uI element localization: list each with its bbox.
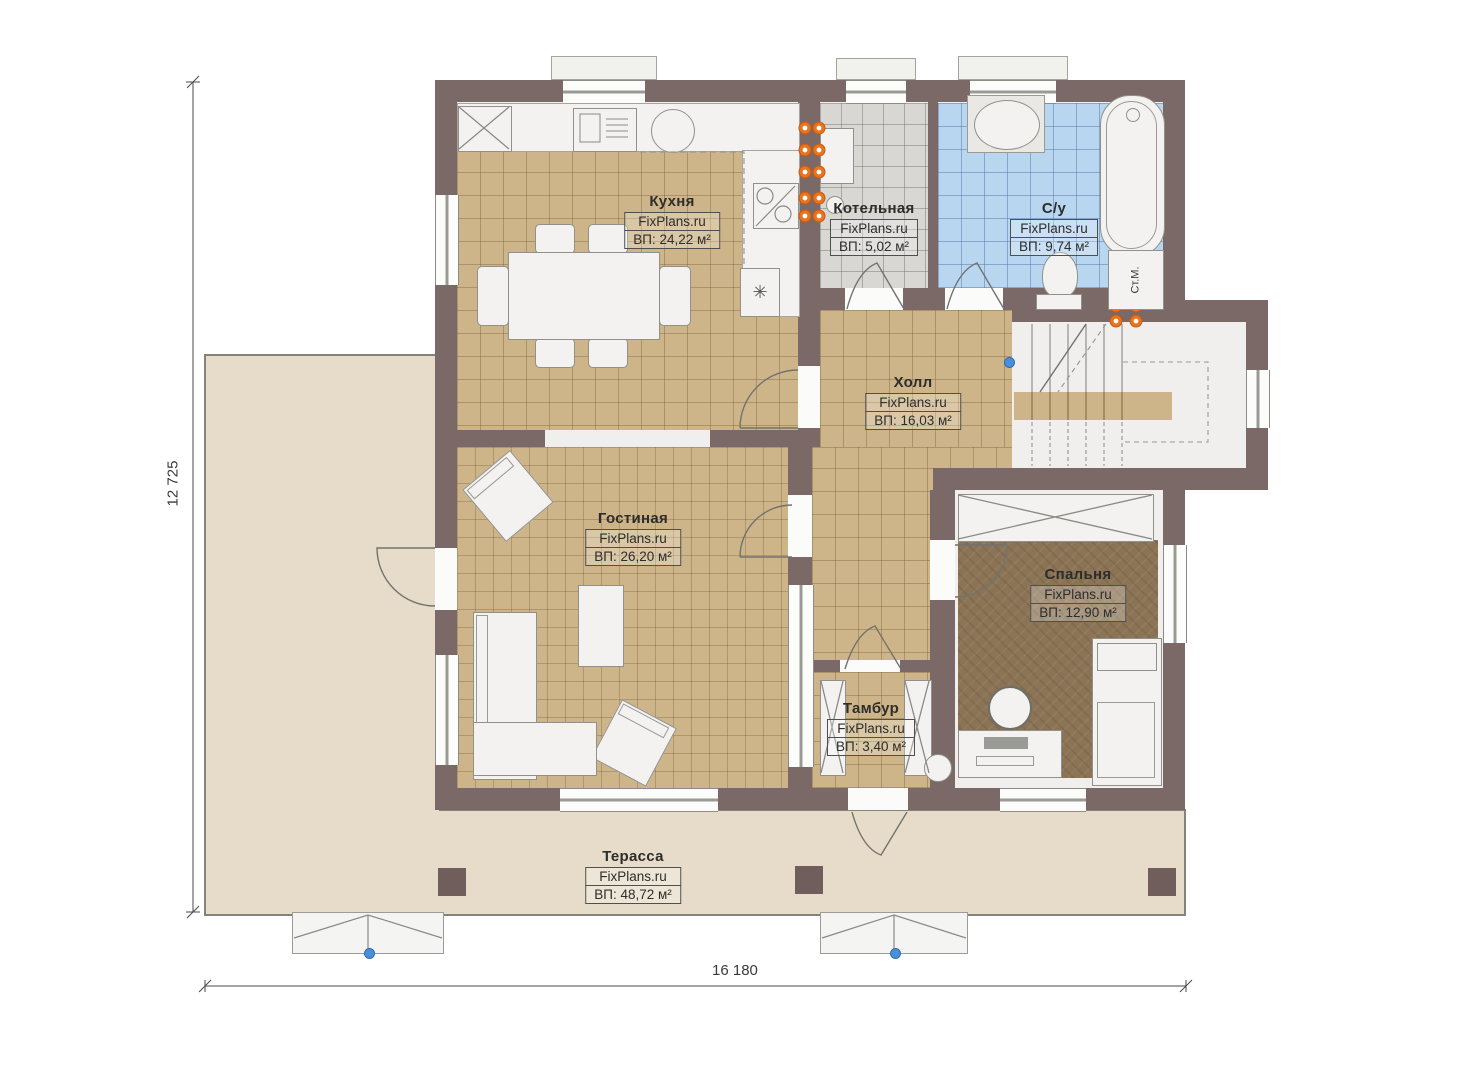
- hall-floor: [812, 447, 1012, 468]
- terrace-post: [438, 868, 466, 896]
- sofa-chaise: [473, 722, 597, 776]
- room-area: ВП: 26,20 м²: [585, 547, 681, 566]
- wall-right-upper: [1163, 80, 1185, 322]
- door-opening-bathroom: [945, 288, 1003, 310]
- kitchen-sink: [458, 106, 512, 152]
- stairs-landing: [1014, 392, 1172, 420]
- washing-machine-label: Ст.М.: [1130, 266, 1142, 293]
- terrace-post: [212, 362, 238, 388]
- chair: [588, 224, 628, 254]
- room-label-boiler: Котельная FixPlans.ru ВП: 5,02 м²: [830, 200, 918, 256]
- stove: [573, 108, 637, 152]
- room-name: Котельная: [830, 200, 918, 217]
- window: [560, 788, 718, 812]
- bathtub-drain: [1126, 108, 1140, 122]
- toilet-tank: [1036, 294, 1082, 310]
- room-area: ВП: 9,74 м²: [1010, 237, 1098, 256]
- dimension-bottom: 16 180: [712, 962, 758, 979]
- room-label-vestibule: Тамбур FixPlans.ru ВП: 3,40 м²: [827, 700, 915, 756]
- room-name: Гостиная: [585, 510, 681, 527]
- window: [1246, 370, 1270, 428]
- wall-kitchen-bottom: [457, 430, 545, 447]
- entry-door-opening: [848, 788, 908, 810]
- room-label-hall: Холл FixPlans.ru ВП: 16,03 м²: [865, 374, 961, 430]
- room-area: ВП: 3,40 м²: [827, 737, 915, 756]
- watermark: FixPlans.ru: [865, 393, 961, 412]
- watermark: FixPlans.ru: [1030, 585, 1126, 604]
- room-area: ВП: 24,22 м²: [624, 230, 720, 249]
- chair: [535, 224, 575, 254]
- coffee-table: [578, 585, 624, 667]
- kitchen-bowl: [651, 109, 695, 153]
- desk-keyboard: [984, 737, 1028, 749]
- wall-top: [435, 80, 1185, 102]
- watermark: FixPlans.ru: [827, 719, 915, 738]
- double-sink: [753, 183, 799, 229]
- door-opening-terrace: [435, 548, 457, 610]
- chair: [659, 266, 691, 326]
- room-area: ВП: 48,72 м²: [585, 885, 681, 904]
- terrace-post: [212, 618, 238, 644]
- terrace-post: [795, 866, 823, 894]
- room-label-living: Гостиная FixPlans.ru ВП: 26,20 м²: [585, 510, 681, 566]
- window: [846, 80, 906, 104]
- floor-plan-canvas: ✳ Ст.М.: [0, 0, 1474, 1080]
- room-name: С/у: [1010, 200, 1098, 217]
- terrace-post: [212, 872, 238, 898]
- toilet-bowl: [1042, 252, 1078, 298]
- cooktop-symbol-box: ✳: [740, 268, 780, 317]
- bathroom-sink: [974, 100, 1040, 150]
- window: [1000, 788, 1086, 812]
- chair: [477, 266, 509, 326]
- window-sill: [958, 56, 1068, 80]
- terrace-post: [1148, 868, 1176, 896]
- wall-boiler-bath-divider: [928, 102, 938, 288]
- wardrobe: [958, 494, 1154, 542]
- wall-stair-wing-bottom: [1185, 468, 1268, 490]
- wall-kitchen-bottom: [710, 430, 820, 447]
- door-opening-vestibule: [840, 660, 900, 672]
- door-opening-kitchen-hall: [798, 366, 820, 428]
- chair: [535, 338, 575, 368]
- room-area: ВП: 16,03 м²: [865, 411, 961, 430]
- room-label-terrace: Терасса FixPlans.ru ВП: 48,72 м²: [585, 848, 681, 904]
- pouf: [924, 754, 952, 782]
- wall-bedroom-left: [930, 490, 955, 790]
- room-area: ВП: 5,02 м²: [830, 237, 918, 256]
- window-sill: [551, 56, 657, 80]
- room-label-kitchen: Кухня FixPlans.ru ВП: 24,22 м²: [624, 193, 720, 249]
- desk-item: [976, 756, 1034, 766]
- watermark: FixPlans.ru: [585, 867, 681, 886]
- room-label-bathroom: С/у FixPlans.ru ВП: 9,74 м²: [1010, 200, 1098, 256]
- door-opening-bedroom: [930, 540, 955, 600]
- hall-floor: [812, 468, 933, 672]
- room-name: Тамбур: [827, 700, 915, 717]
- room-name: Терасса: [585, 848, 681, 865]
- dimension-left: 12 725: [164, 461, 181, 507]
- marker-dot: [364, 948, 375, 959]
- opening-living-hall: [788, 585, 814, 767]
- chair: [588, 338, 628, 368]
- room-label-bedroom: Спальня FixPlans.ru ВП: 12,90 м²: [1030, 566, 1126, 622]
- watermark: FixPlans.ru: [1010, 219, 1098, 238]
- bedroom-chair: [988, 686, 1032, 730]
- wall-bedroom-top: [933, 468, 1163, 490]
- bathtub-inner: [1106, 101, 1157, 249]
- bed-pillow: [1097, 643, 1157, 671]
- room-name: Холл: [865, 374, 961, 391]
- washing-machine: Ст.М.: [1108, 250, 1164, 310]
- window: [435, 655, 459, 765]
- cooktop-symbol: ✳: [752, 282, 767, 303]
- marker-dot: [1004, 357, 1015, 368]
- boiler-unit: [820, 128, 854, 184]
- dining-table: [508, 252, 660, 340]
- window-sill: [836, 58, 916, 80]
- bed-blanket: [1097, 702, 1155, 778]
- window: [563, 80, 645, 104]
- marker-dot: [890, 948, 901, 959]
- room-name: Спальня: [1030, 566, 1126, 583]
- window: [435, 195, 459, 285]
- watermark: FixPlans.ru: [624, 212, 720, 231]
- watermark: FixPlans.ru: [585, 529, 681, 548]
- window: [1163, 545, 1187, 643]
- door-opening-boiler: [845, 288, 903, 310]
- room-name: Кухня: [624, 193, 720, 210]
- watermark: FixPlans.ru: [830, 219, 918, 238]
- door-opening-living-hall: [788, 495, 812, 557]
- room-area: ВП: 12,90 м²: [1030, 603, 1126, 622]
